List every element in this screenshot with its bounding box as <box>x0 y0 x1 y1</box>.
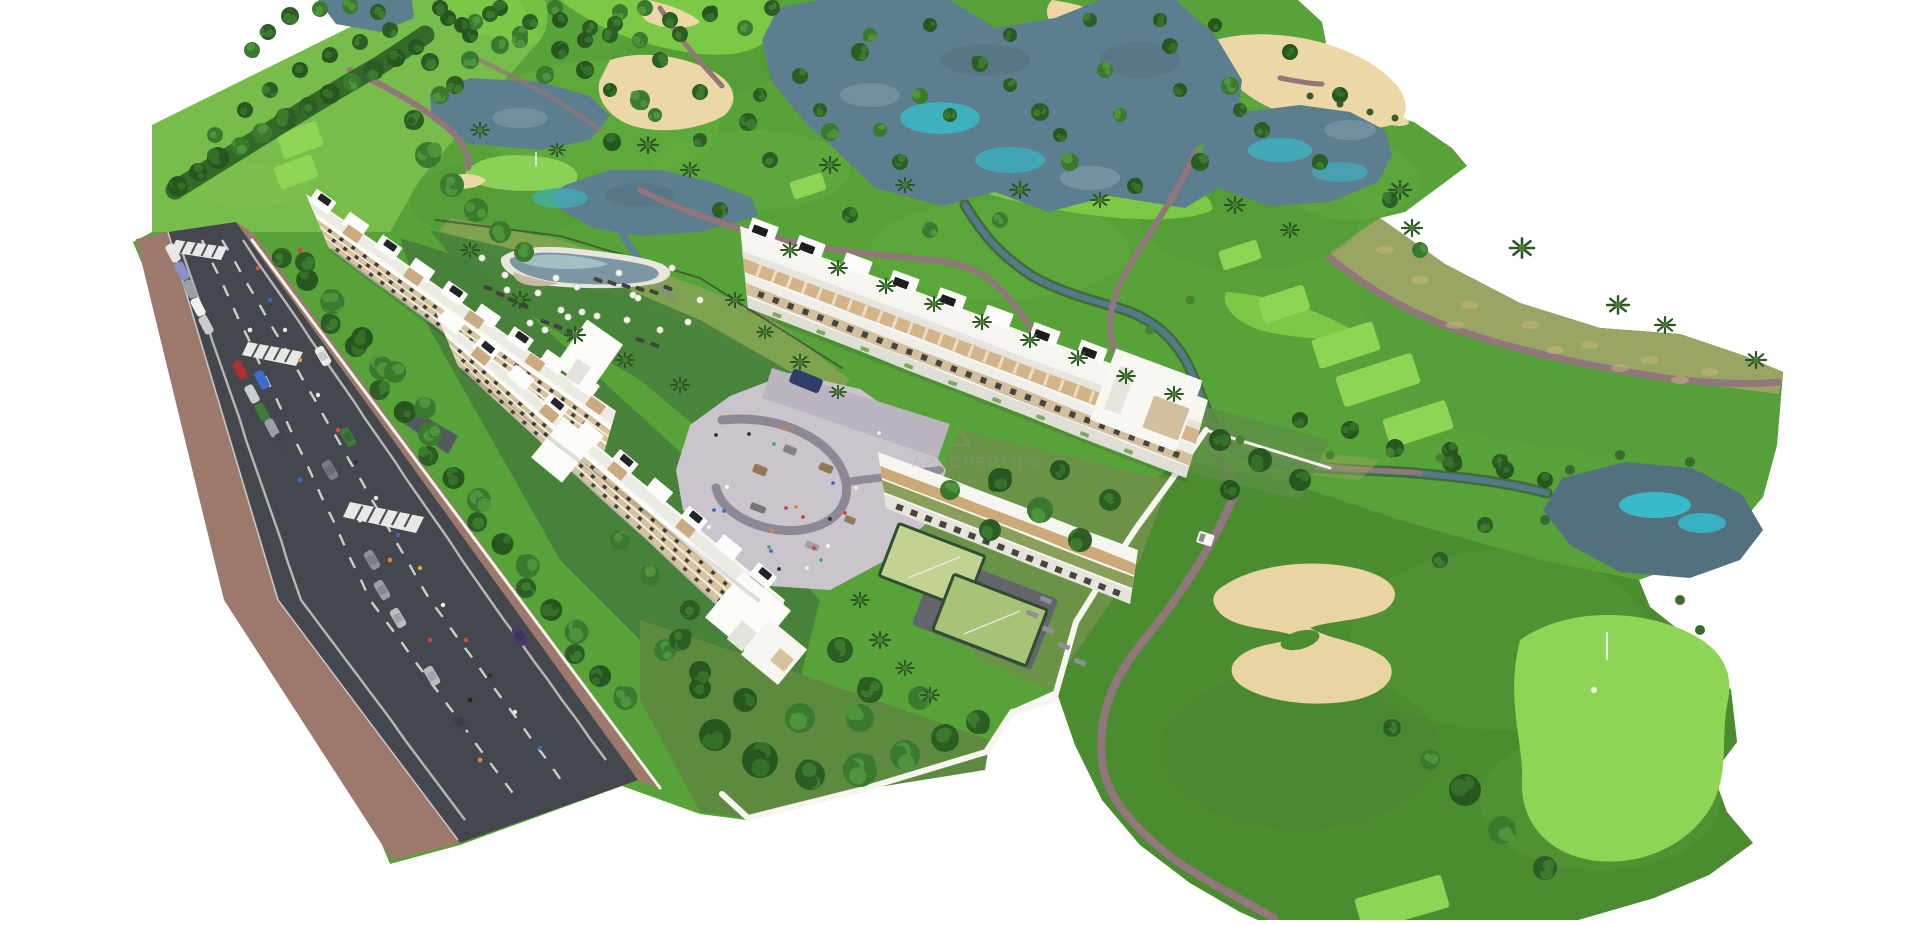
svg-text:APROPERTIES: APROPERTIES <box>912 455 1042 472</box>
svg-text:BRASIL: BRASIL <box>958 477 1021 489</box>
